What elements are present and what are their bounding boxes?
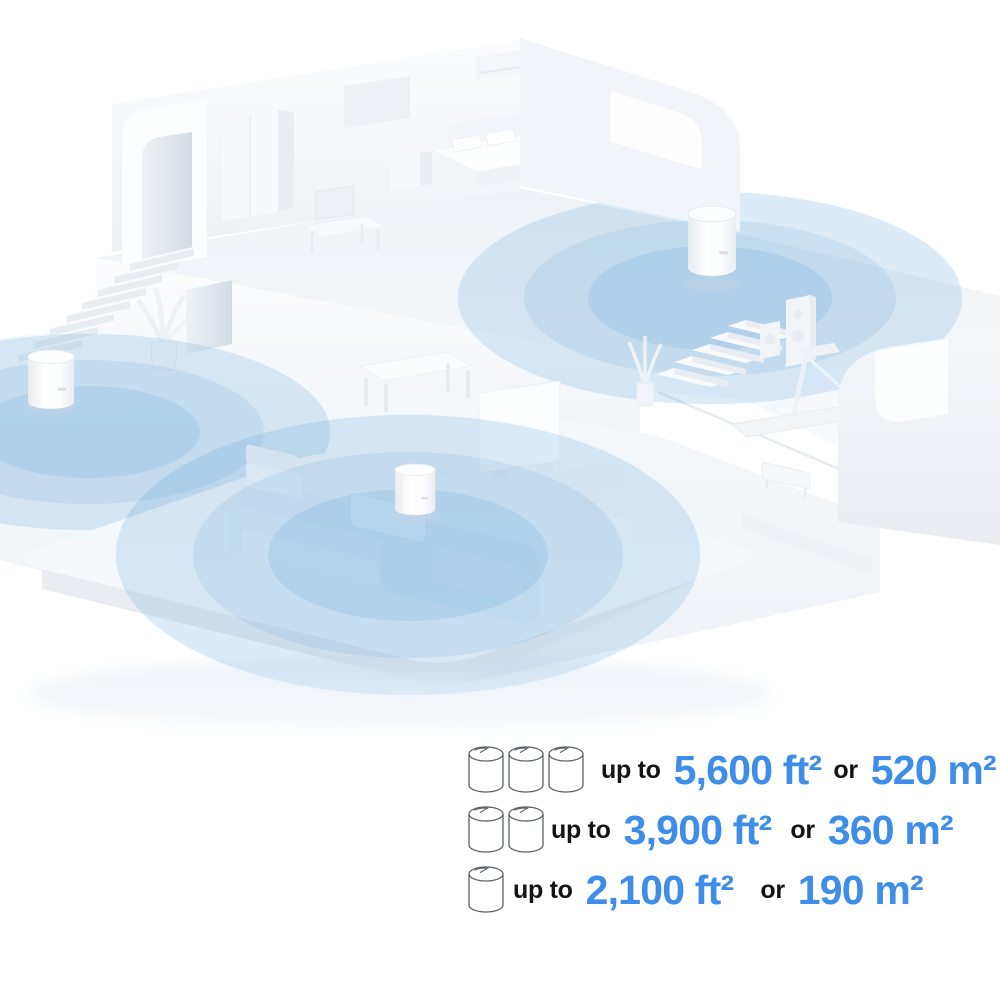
coverage-row-2-units: up to 3,900 ft² or 360 m² bbox=[467, 805, 996, 855]
deco-unit-living bbox=[391, 464, 439, 523]
coverage-ft-value: 5,600 ft² bbox=[674, 747, 822, 794]
coverage-m-value: 190 m² bbox=[798, 867, 923, 914]
arched-wall-window bbox=[875, 339, 948, 421]
unit-icon-group bbox=[467, 805, 545, 855]
unit-icon-group bbox=[467, 745, 585, 795]
up-to-label: up to bbox=[551, 816, 611, 845]
coverage-row-3-units: up to 5,600 ft² or 520 m² bbox=[467, 745, 996, 795]
coverage-ft-value: 2,100 ft² bbox=[586, 867, 734, 914]
deco-unit-icon bbox=[467, 865, 505, 915]
coverage-row-1-unit: up to 2,100 ft² or 190 m² bbox=[467, 865, 996, 915]
deco-unit-left bbox=[24, 350, 78, 414]
or-label: or bbox=[760, 876, 784, 905]
hallway-doorway bbox=[186, 280, 232, 354]
coverage-m-value: 360 m² bbox=[828, 807, 953, 854]
or-label: or bbox=[790, 816, 814, 845]
nightstand bbox=[390, 151, 432, 191]
deco-unit-icon bbox=[467, 745, 505, 795]
deco-unit-icon bbox=[547, 745, 585, 795]
wardrobe bbox=[222, 110, 294, 221]
coverage-ft-value: 3,900 ft² bbox=[624, 807, 772, 854]
deco-unit-icon bbox=[507, 745, 545, 795]
or-label: or bbox=[833, 756, 857, 785]
up-to-label: up to bbox=[601, 756, 661, 785]
wifi-coverage-zone-living bbox=[116, 415, 700, 695]
deco-unit-icon bbox=[467, 805, 505, 855]
coverage-m-value: 520 m² bbox=[871, 747, 996, 794]
up-to-label: up to bbox=[513, 876, 573, 905]
unit-icon-group bbox=[467, 865, 505, 915]
deco-unit-icon bbox=[507, 805, 545, 855]
arched-garage-wall bbox=[838, 330, 1000, 545]
arch-doorway bbox=[122, 99, 207, 270]
mesh-coverage-page: up to 5,600 ft² or 520 m² up to 3,900 ft… bbox=[0, 0, 1000, 1000]
coverage-legend: up to 5,600 ft² or 520 m² up to 3,900 ft… bbox=[467, 745, 996, 925]
